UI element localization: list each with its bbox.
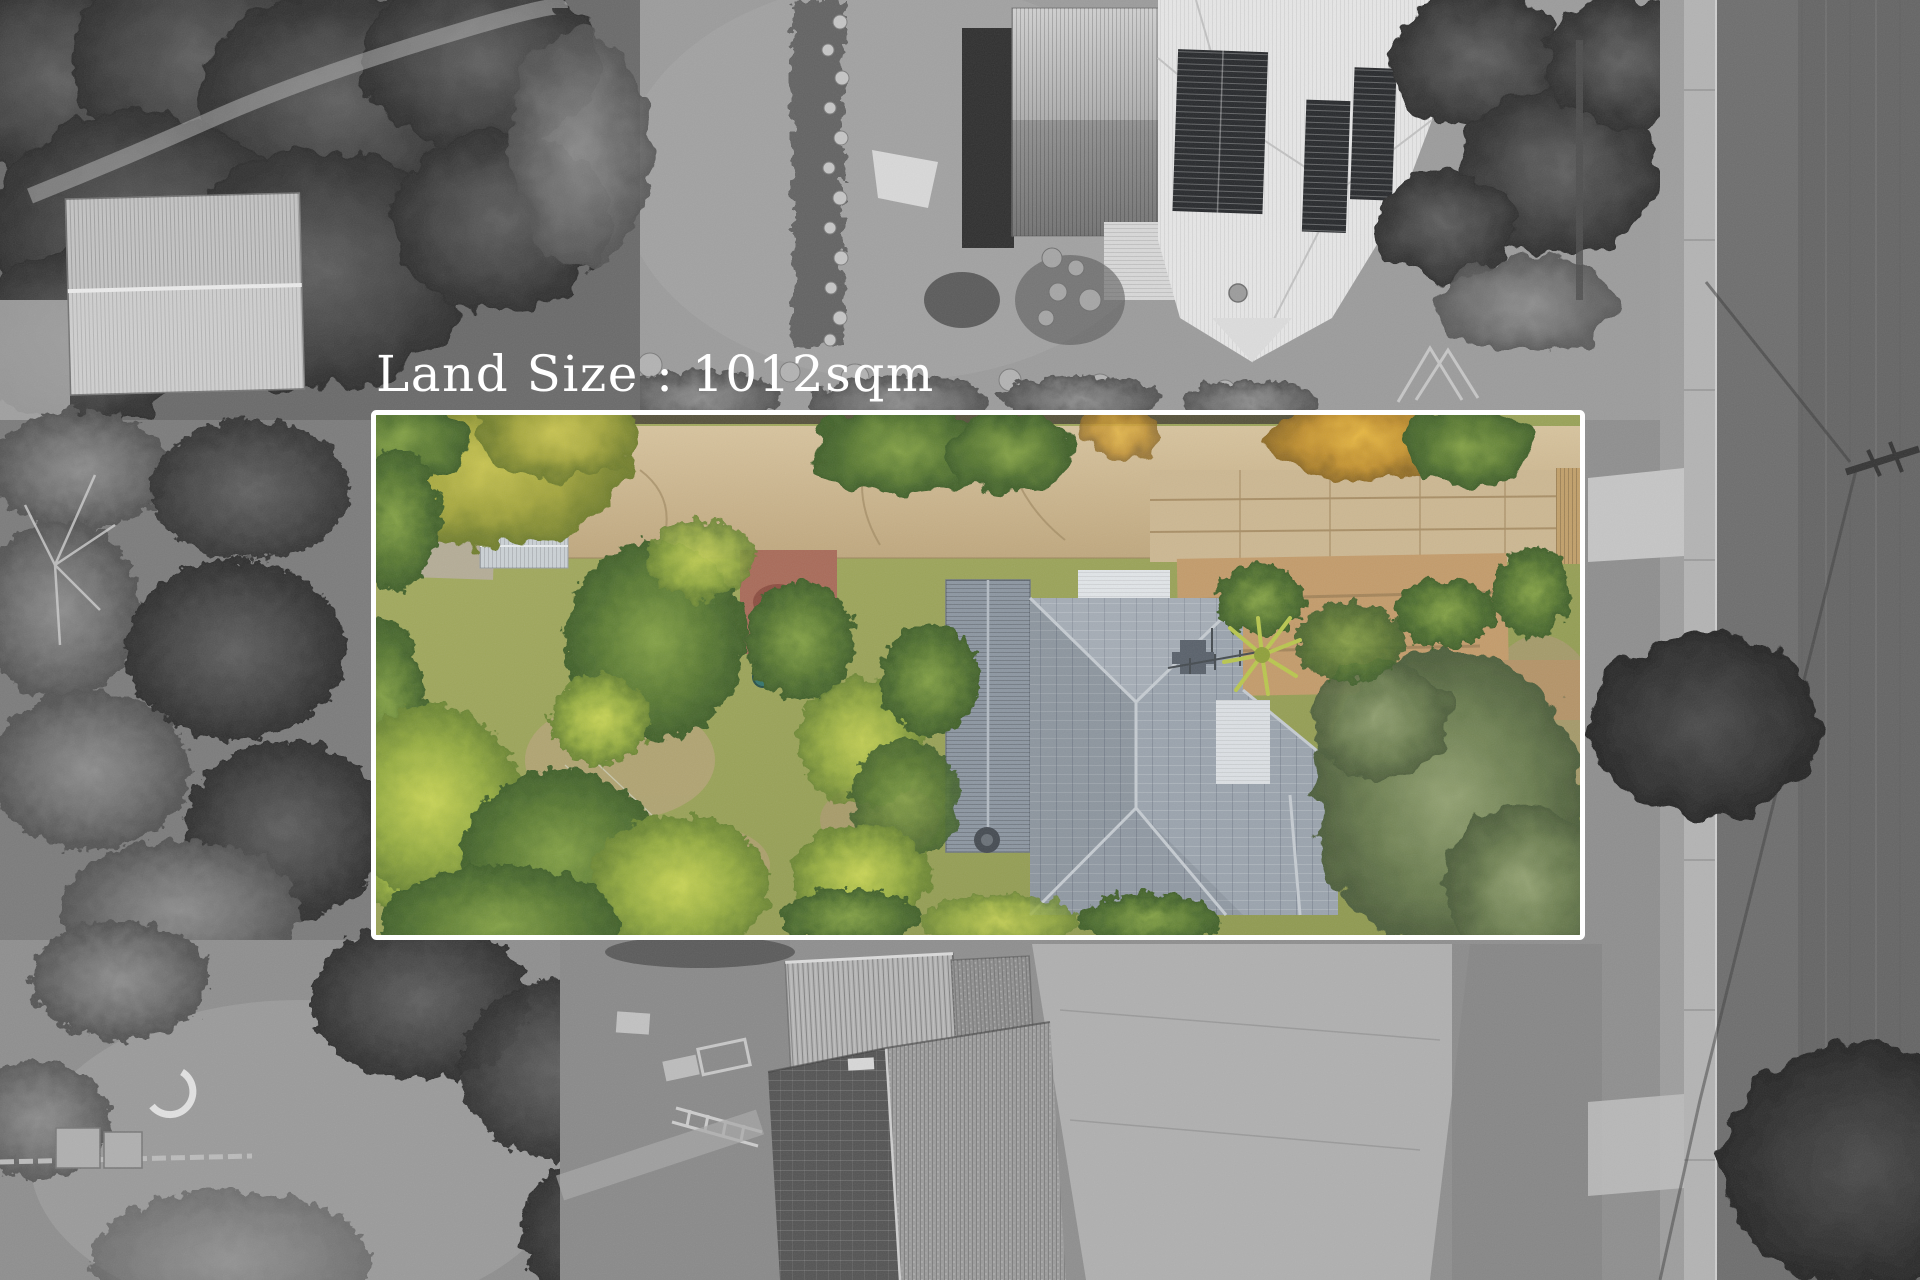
aerial-photo-stage: Land Size : 1012sqm xyxy=(0,0,1920,1280)
film-grain xyxy=(0,0,1920,1280)
aerial-photo: Land Size : 1012sqm xyxy=(0,0,1920,1280)
land-size-label: Land Size : 1012sqm xyxy=(376,345,935,403)
